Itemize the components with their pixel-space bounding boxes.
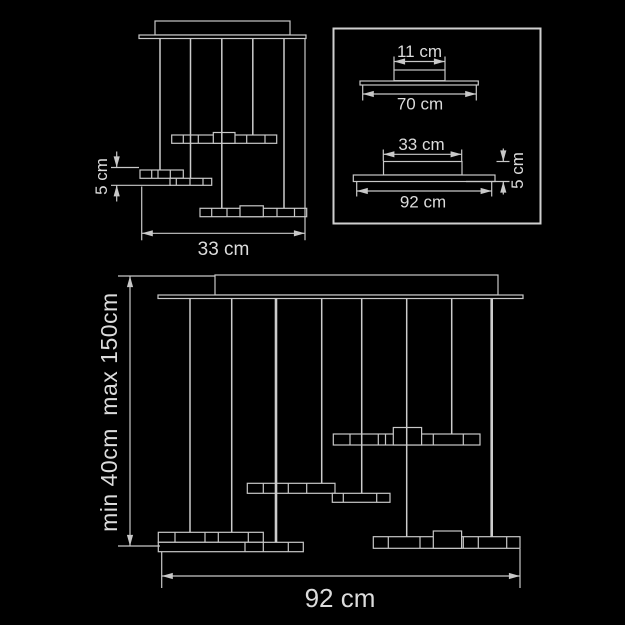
bar-center-block — [240, 206, 263, 217]
front-view-large: max 150cm min 40cm 92 cm — [96, 275, 523, 613]
dimension-label-11cm: 11 cm — [397, 42, 442, 61]
light-bar-bottom-right — [373, 531, 520, 548]
light-bar-bottom-left-upper — [158, 532, 263, 542]
dimension-label-5cm: 5 cm — [92, 158, 111, 195]
light-bar-left-lower — [170, 178, 212, 185]
bar-center-block — [213, 133, 235, 144]
ceiling-rail — [158, 295, 523, 299]
bar-outline — [140, 170, 183, 178]
dimension-suspension-height: max 150cm min 40cm — [96, 276, 215, 546]
bar-center-block — [433, 531, 461, 548]
dimension-label-92cm-detail: 92 cm — [400, 193, 446, 212]
canopy-plate — [360, 81, 478, 85]
light-bar-middle-upper — [247, 483, 335, 493]
light-bar-middle — [172, 133, 277, 144]
ceiling-rail — [139, 35, 306, 39]
bar-outline — [247, 483, 335, 493]
front-view-small: 5 cm 33 cm — [92, 21, 307, 260]
bar-center-body — [384, 162, 463, 176]
canopy — [215, 275, 498, 295]
bar-base — [353, 175, 495, 182]
bar-detail: 33 cm 92 cm 5 cm — [353, 135, 527, 212]
dimension-92cm: 92 cm — [162, 549, 520, 613]
dimension-label-5cm-detail: 5 cm — [508, 152, 527, 189]
dimension-label-33cm: 33 cm — [198, 239, 250, 260]
light-bar-bottom — [200, 206, 307, 217]
canopy-body — [394, 70, 445, 81]
bar-outline — [332, 493, 390, 502]
dimension-label-max-150cm: max 150cm — [96, 292, 122, 415]
bar-outline — [158, 542, 303, 551]
light-bar-bottom-left-lower — [158, 542, 303, 551]
dimension-33cm-small: 33 cm — [142, 39, 305, 261]
bar-outline — [158, 532, 263, 542]
light-bar-left-upper — [140, 170, 183, 178]
technical-drawing: 5 cm 33 cm 11 cm 70 cm — [0, 0, 625, 625]
dimension-drawing-sheet: 5 cm 33 cm 11 cm 70 cm — [0, 0, 625, 625]
dimension-label-70cm: 70 cm — [397, 95, 443, 114]
dimension-label-33cm-detail: 33 cm — [398, 135, 444, 154]
canopy-detail: 11 cm 70 cm — [360, 42, 478, 114]
detail-box: 11 cm 70 cm 33 cm 92 cm 5 cm — [334, 29, 541, 224]
light-bar-middle-lower — [332, 493, 390, 502]
canopy — [155, 21, 290, 35]
dimension-label-92cm: 92 cm — [305, 583, 376, 613]
dimension-label-min-40cm: min 40cm — [96, 428, 122, 532]
